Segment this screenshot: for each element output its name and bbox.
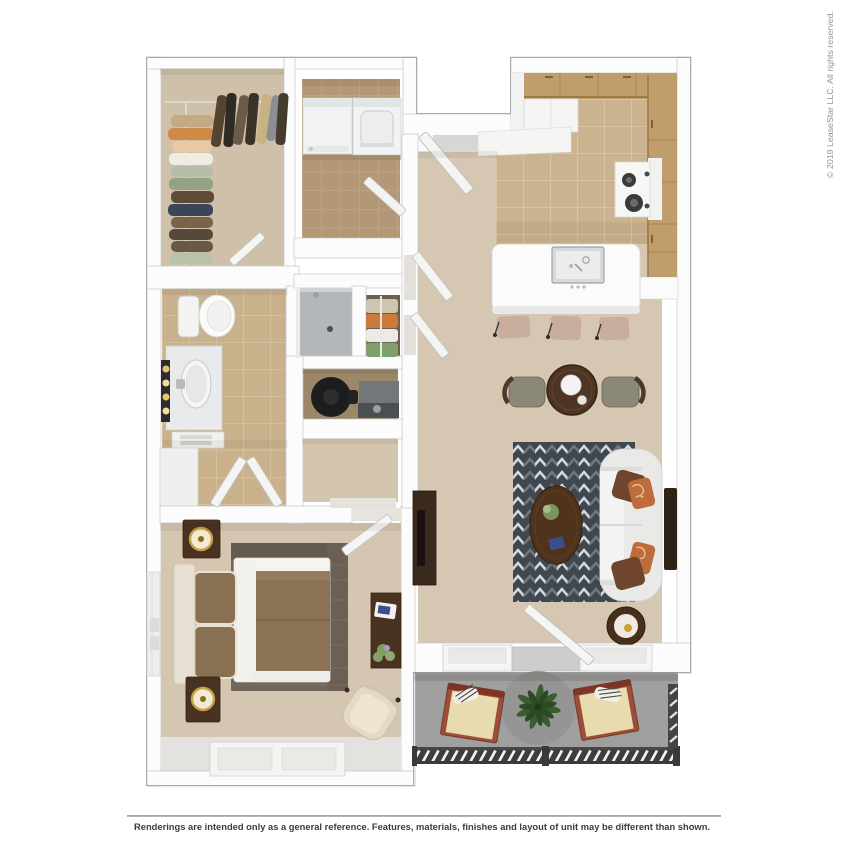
svg-text:© 2019 LeaseStar LLC. All righ: © 2019 LeaseStar LLC. All rights reserve… [825, 11, 835, 178]
svg-text:Renderings are intended only a: Renderings are intended only as a genera… [134, 822, 710, 833]
